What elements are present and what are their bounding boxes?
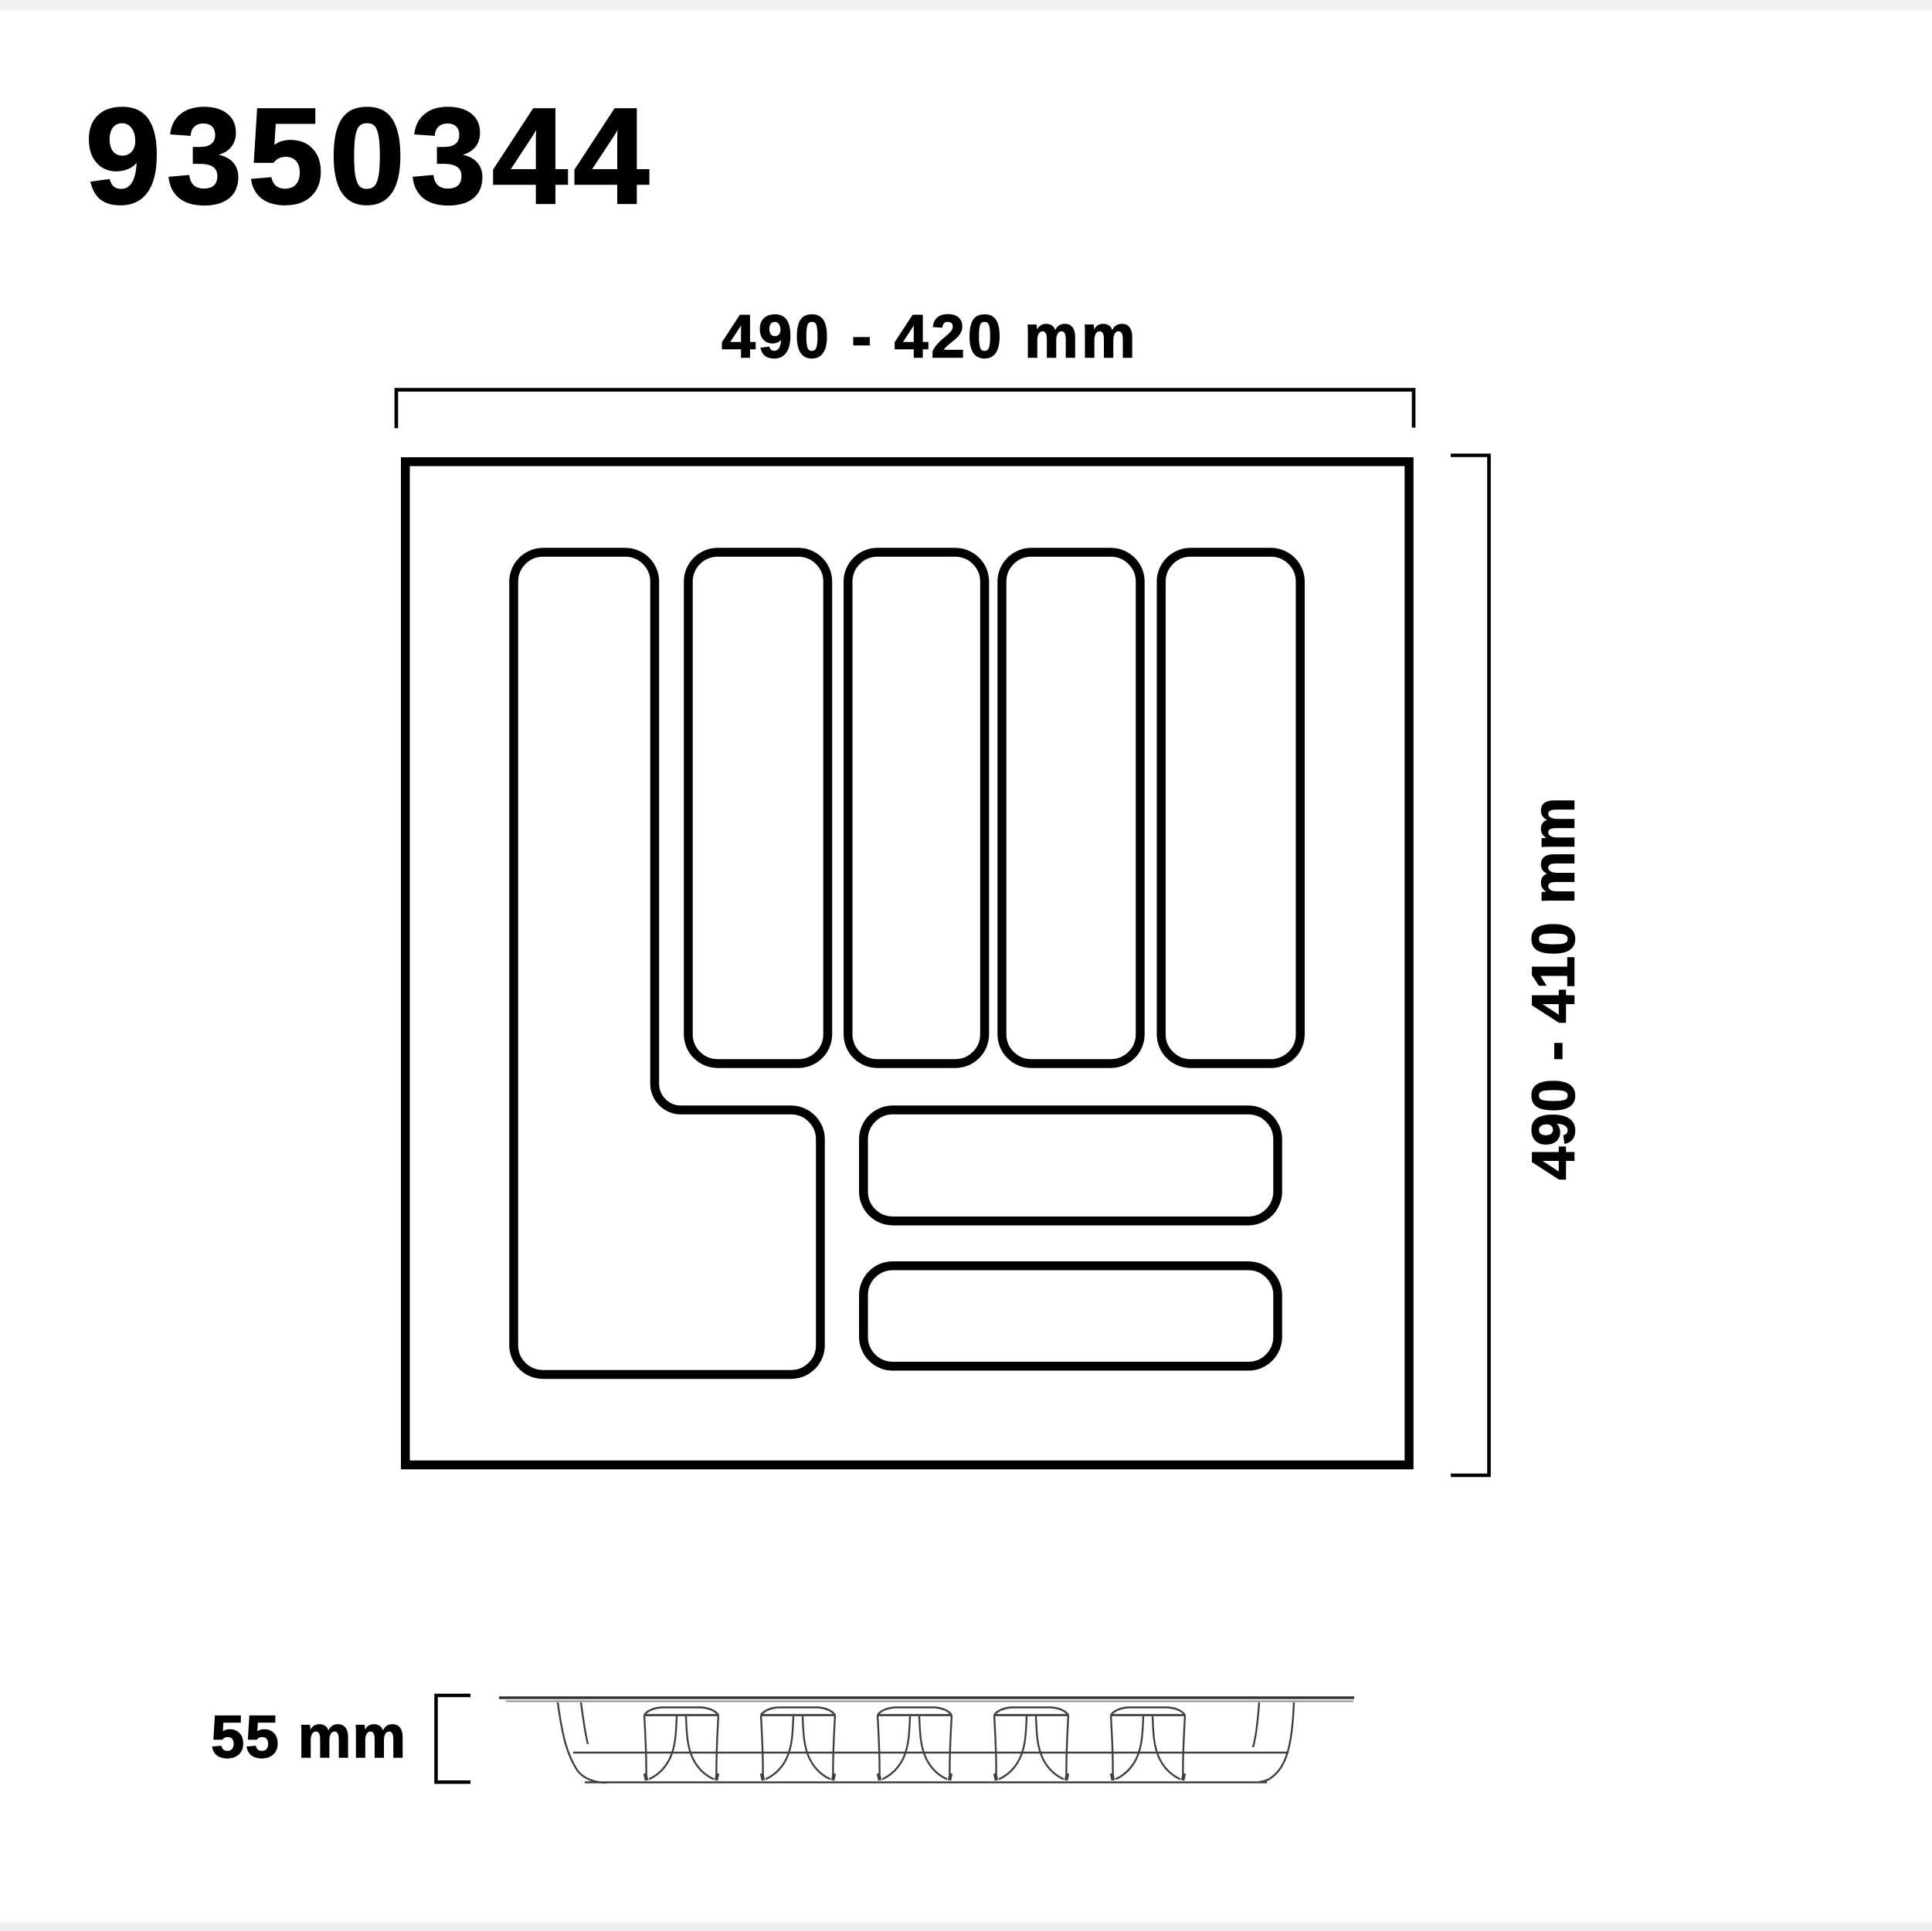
svg-text:490 - 410 mm: 490 - 410 mm bbox=[1521, 796, 1587, 1179]
svg-text:490 - 420 mm: 490 - 420 mm bbox=[722, 301, 1138, 370]
svg-text:55 mm: 55 mm bbox=[211, 1702, 407, 1770]
svg-text:9350344: 9350344 bbox=[85, 80, 654, 232]
